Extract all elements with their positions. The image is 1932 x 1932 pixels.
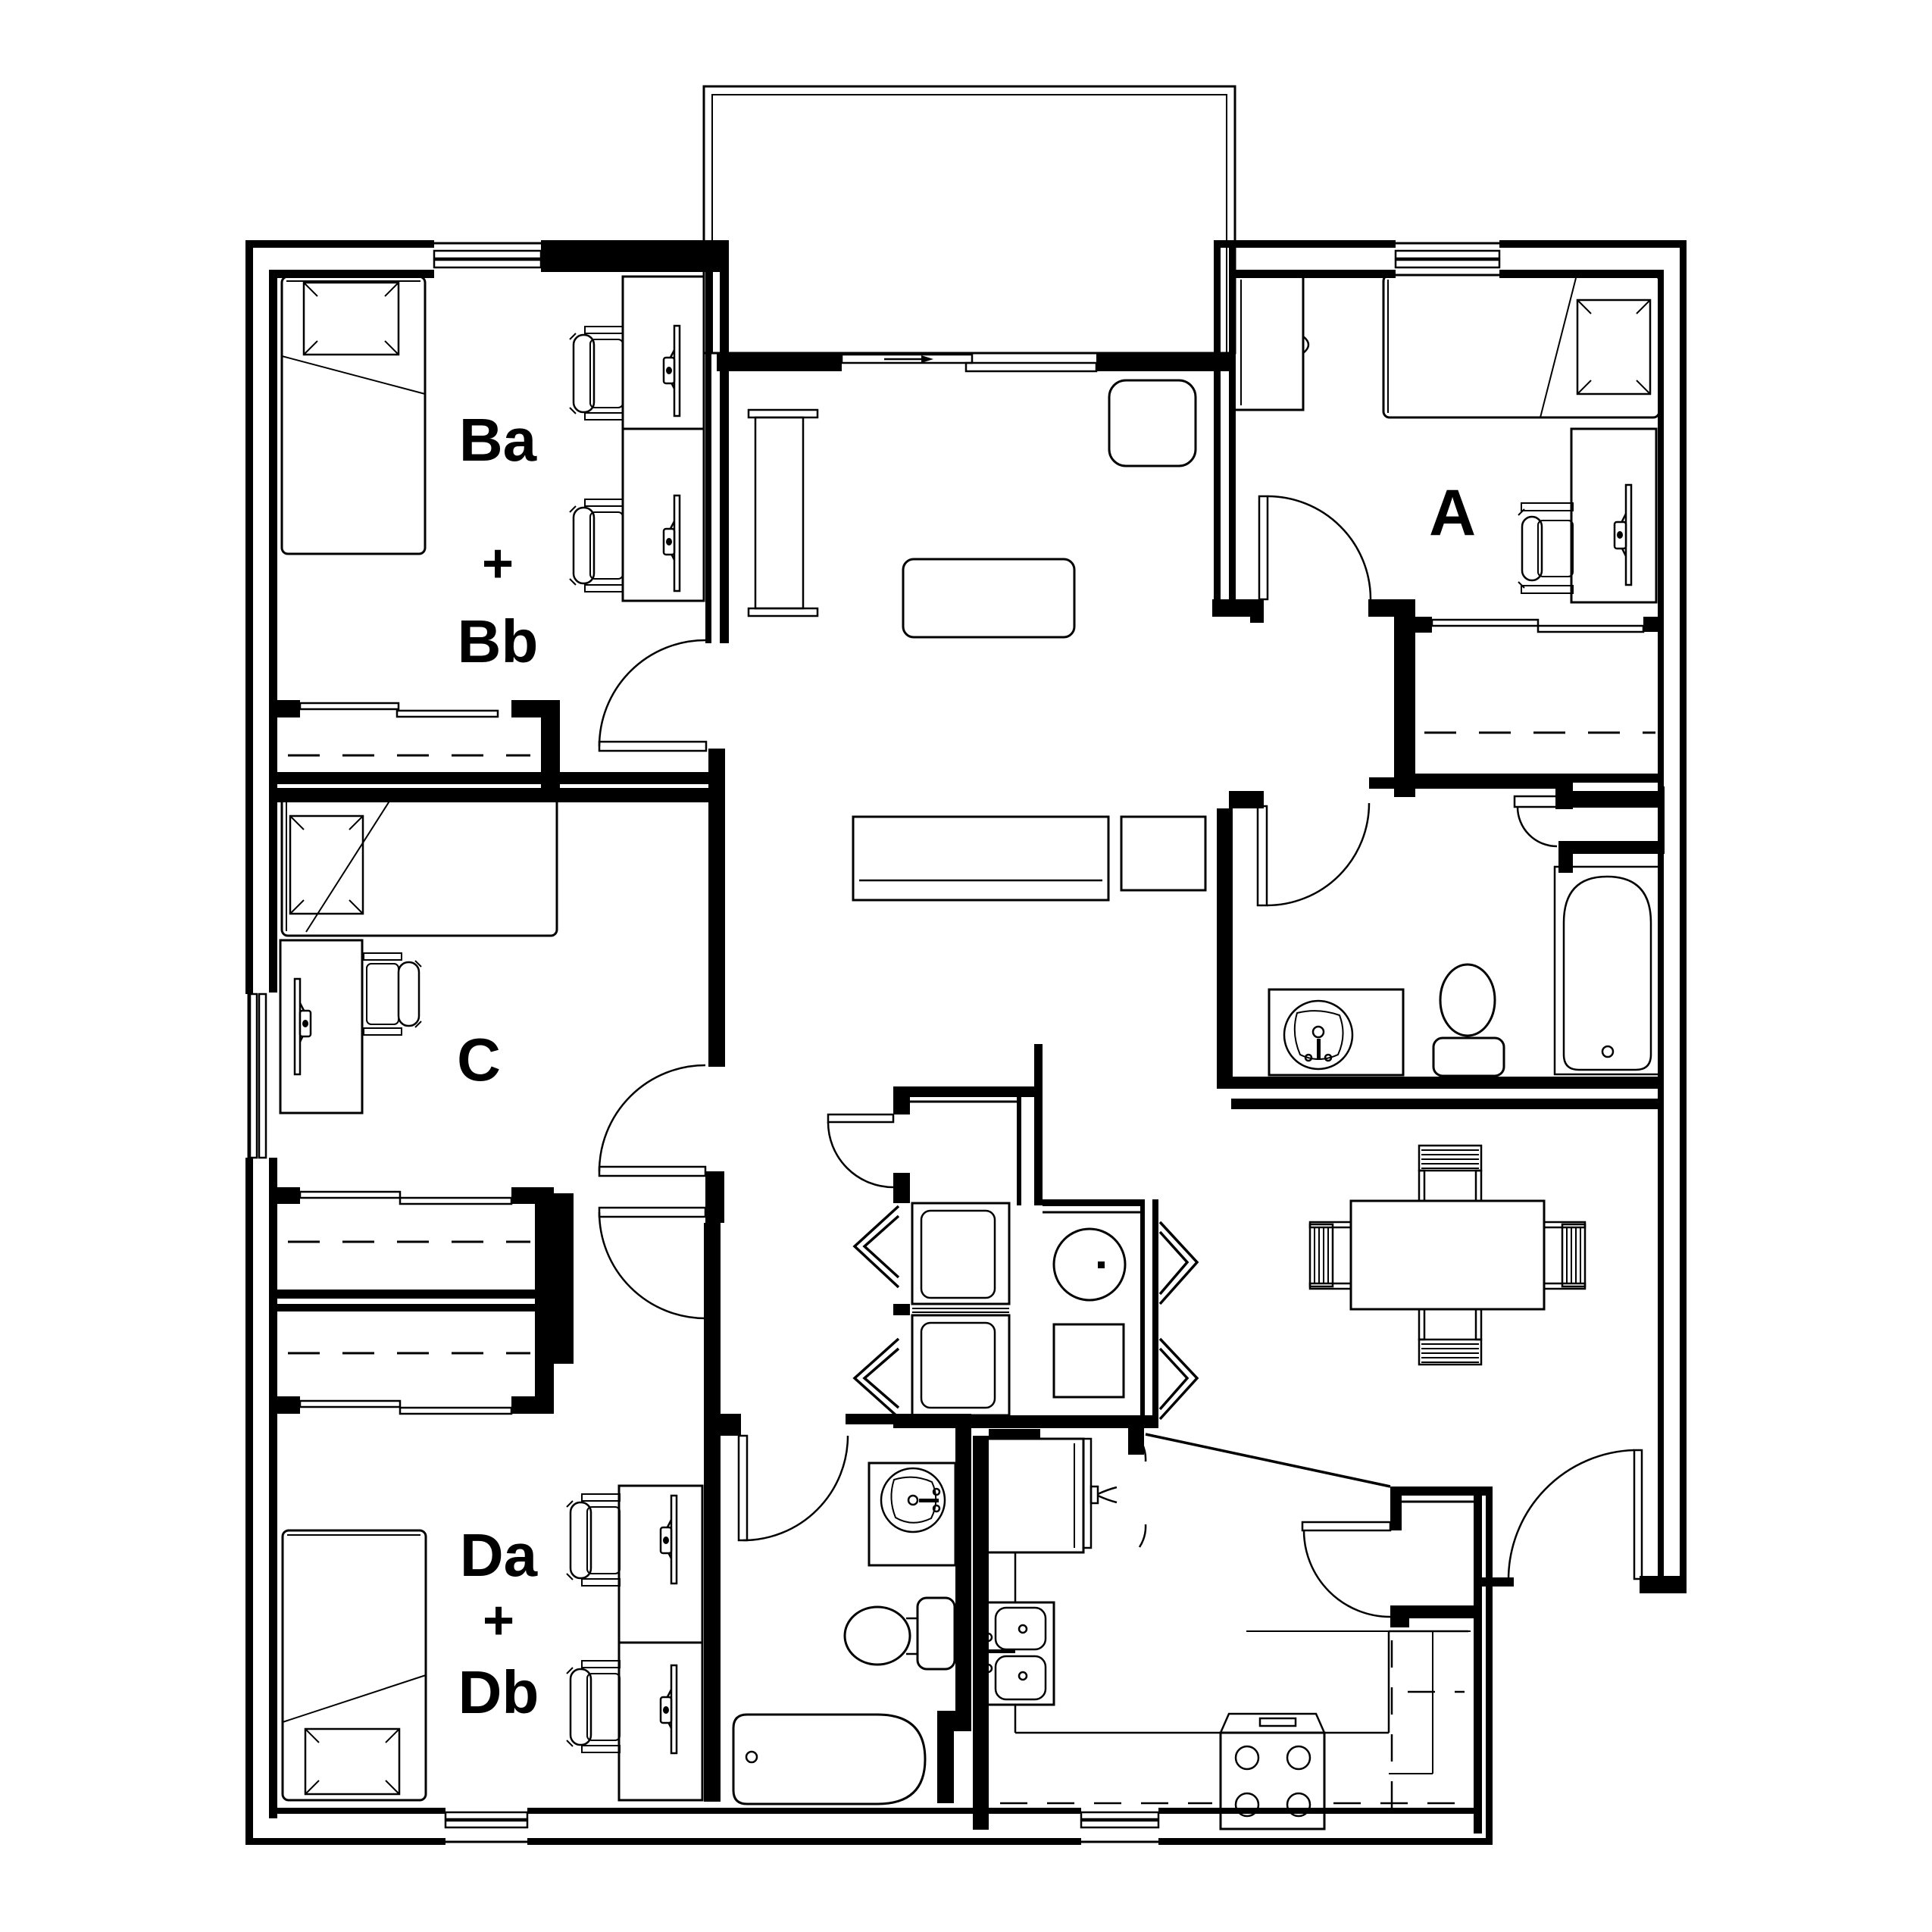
svg-text:Ba: Ba	[459, 406, 537, 474]
svg-text:C: C	[457, 1026, 501, 1093]
svg-text:Da: Da	[460, 1521, 538, 1589]
svg-text:+: +	[482, 533, 514, 594]
svg-text:Db: Db	[458, 1658, 539, 1726]
svg-text:Bb: Bb	[458, 608, 539, 675]
svg-text:A: A	[1429, 477, 1476, 549]
svg-text:+: +	[483, 1590, 514, 1651]
